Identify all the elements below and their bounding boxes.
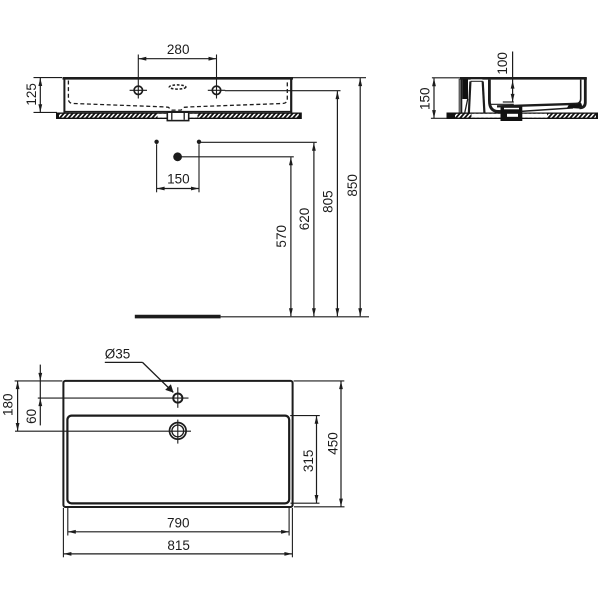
svg-text:620: 620 bbox=[297, 208, 312, 231]
svg-text:850: 850 bbox=[345, 174, 360, 197]
svg-text:815: 815 bbox=[167, 538, 190, 553]
svg-text:805: 805 bbox=[320, 190, 335, 213]
svg-text:280: 280 bbox=[167, 42, 190, 57]
svg-text:790: 790 bbox=[167, 515, 190, 530]
svg-text:150: 150 bbox=[418, 87, 433, 110]
svg-text:Ø35: Ø35 bbox=[105, 346, 131, 361]
svg-text:60: 60 bbox=[24, 409, 39, 424]
svg-text:180: 180 bbox=[0, 393, 15, 416]
svg-text:570: 570 bbox=[274, 225, 289, 248]
svg-text:315: 315 bbox=[301, 450, 316, 473]
svg-text:125: 125 bbox=[24, 83, 39, 106]
svg-text:100: 100 bbox=[495, 52, 510, 75]
svg-text:450: 450 bbox=[325, 432, 340, 455]
svg-text:150: 150 bbox=[167, 171, 190, 186]
